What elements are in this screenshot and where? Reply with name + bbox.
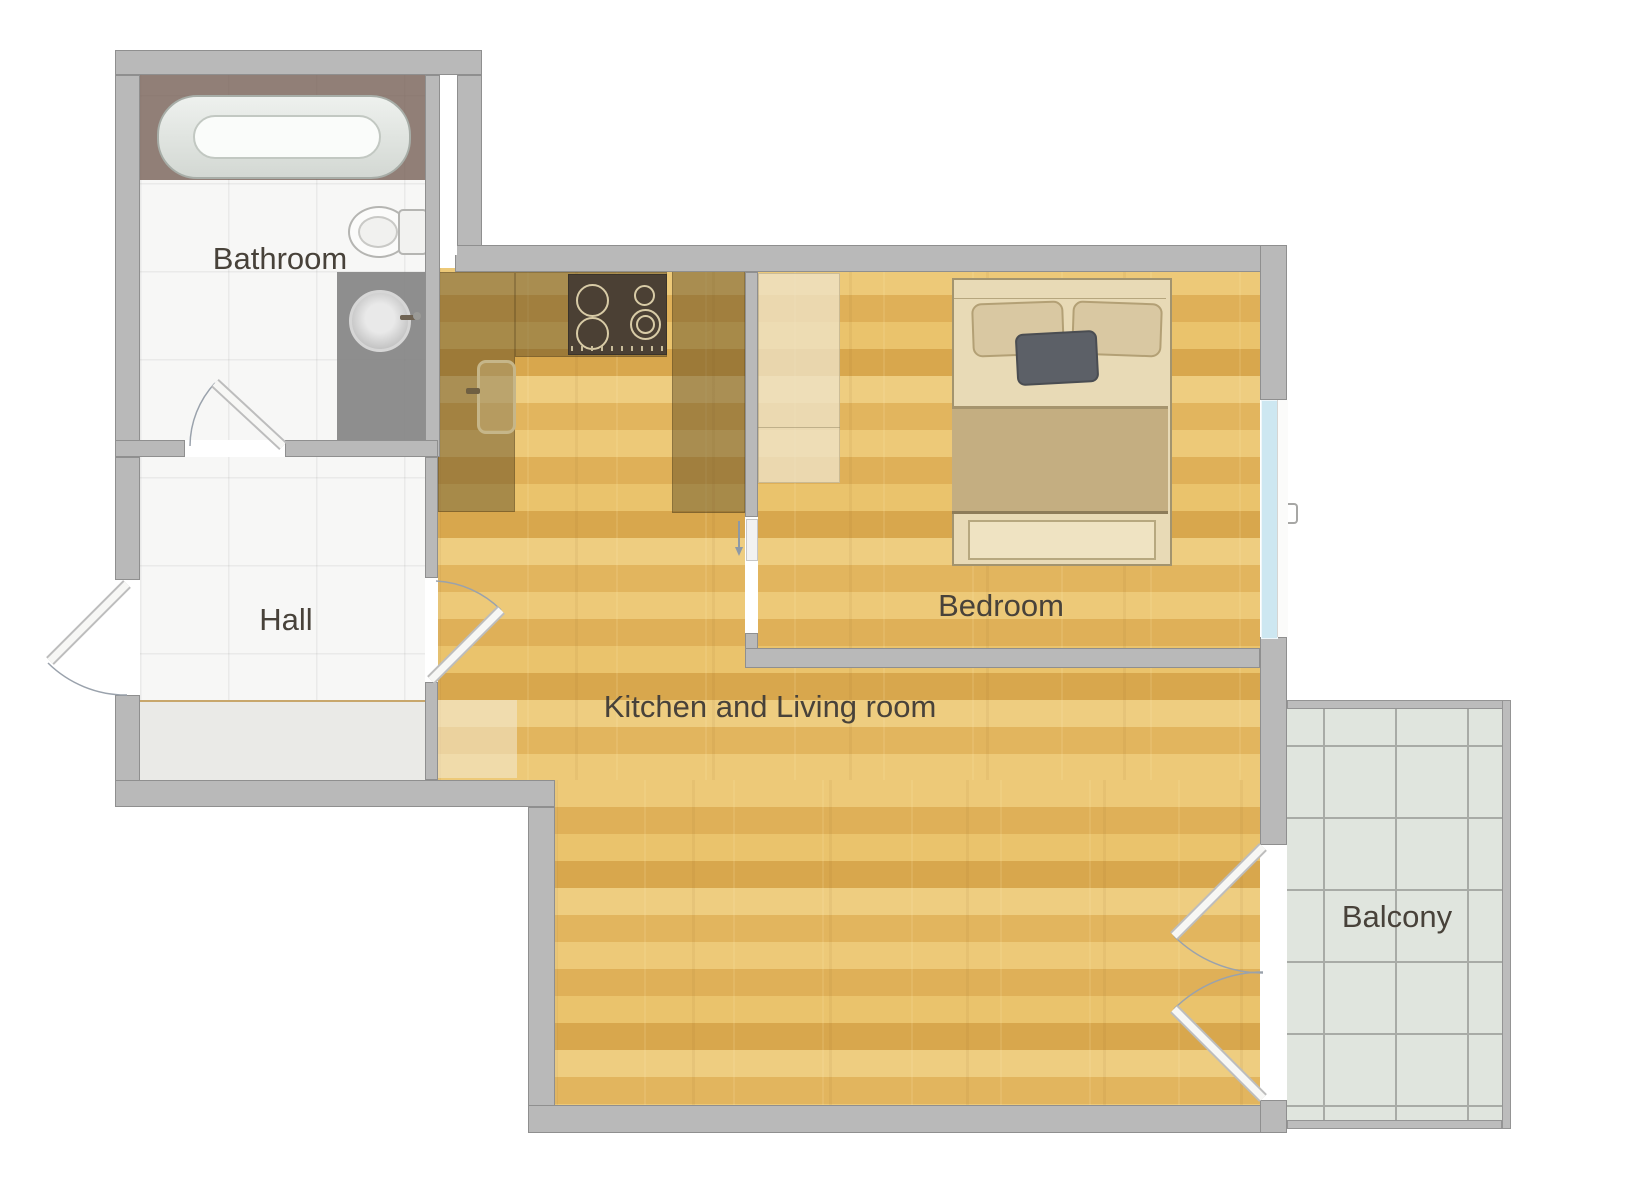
floor-plan: Bathroom Hall Kitchen and Living room Be… (0, 0, 1646, 1200)
sliding-door-arrow-icon (735, 521, 743, 556)
bathroom-door (190, 383, 283, 446)
room-label-hall: Hall (259, 602, 312, 638)
room-label-kitchen-living: Kitchen and Living room (604, 689, 937, 725)
doors-overlay (0, 0, 1646, 1200)
balcony-french-doors (1174, 847, 1263, 1098)
room-label-balcony: Balcony (1342, 899, 1452, 935)
hall-living-door (431, 581, 501, 680)
room-label-bathroom: Bathroom (213, 241, 347, 277)
room-label-bedroom: Bedroom (938, 588, 1064, 624)
entrance-door (48, 584, 127, 695)
